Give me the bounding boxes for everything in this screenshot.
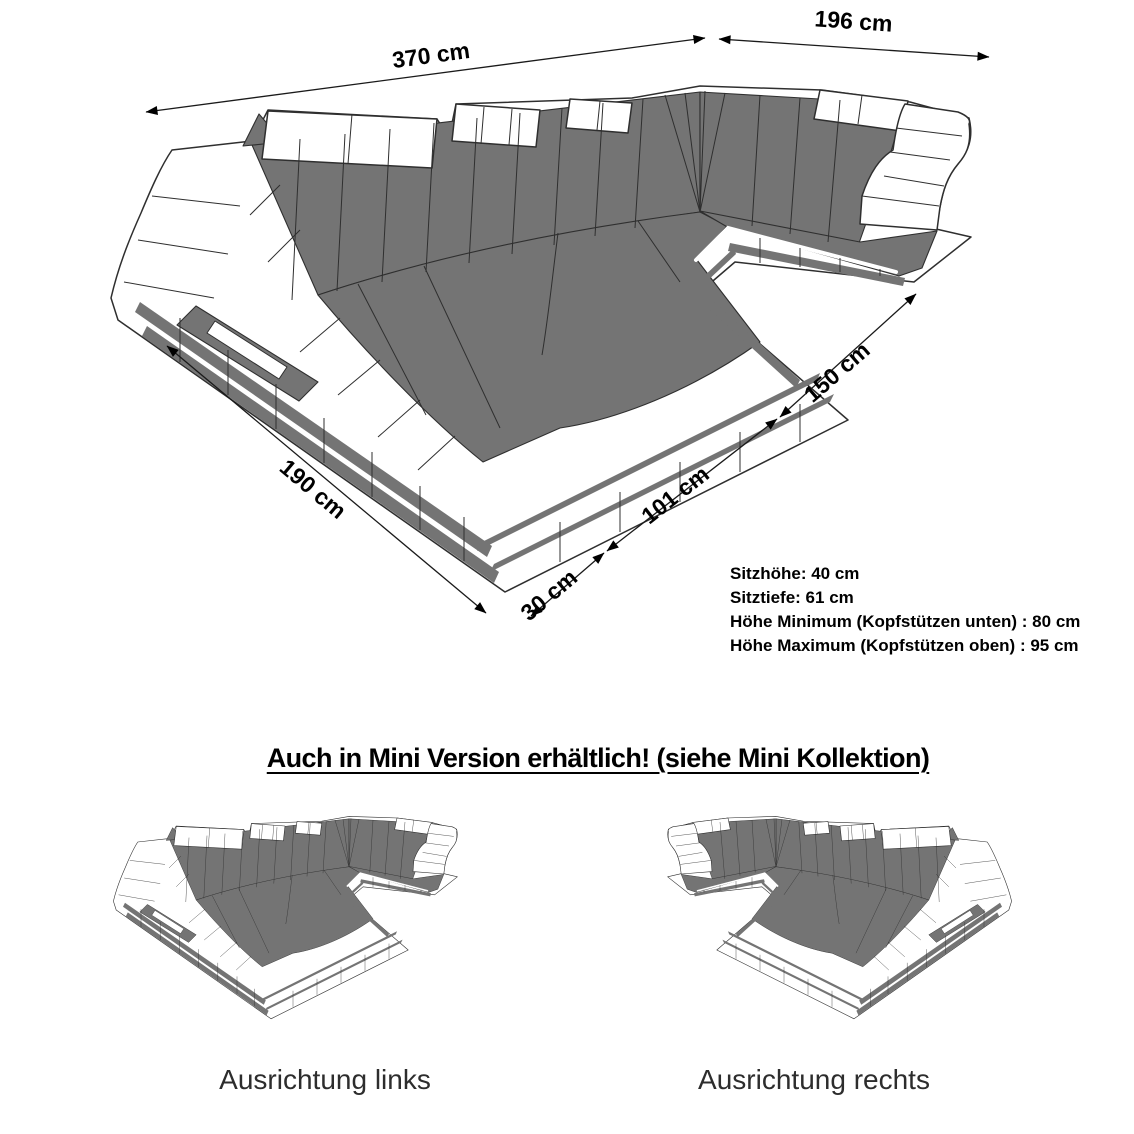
dimension-right-depth: 196 cm (719, 5, 989, 57)
spec-text-block: Sitzhöhe: 40 cm Sitztiefe: 61 cm Höhe Mi… (730, 562, 1080, 658)
dimension-right-inner-depth: 150 cm (780, 294, 916, 417)
mini-sofa-right-illustration (668, 816, 1012, 1018)
spec-height-min: Höhe Minimum (Kopfstützen unten) : 80 cm (730, 610, 1080, 634)
spec-seat-height: Sitzhöhe: 40 cm (730, 562, 1080, 586)
dimension-label-370: 370 cm (391, 37, 472, 73)
spec-height-max: Höhe Maximum (Kopfstützen oben) : 95 cm (730, 634, 1080, 658)
spec-seat-depth: Sitztiefe: 61 cm (730, 586, 1080, 610)
mini-version-heading: Auch in Mini Version erhältlich! (siehe … (267, 743, 929, 774)
mini-right-orientation-label: Ausrichtung rechts (698, 1064, 930, 1096)
sofa-dimension-diagram: 370 cm 196 cm 150 cm 101 cm 30 cm 190 cm… (0, 0, 1134, 1134)
dimension-label-196: 196 cm (814, 5, 894, 36)
mini-sofa-left-illustration (113, 816, 457, 1018)
mini-left-orientation-label: Ausrichtung links (219, 1064, 431, 1096)
dimension-label-150: 150 cm (799, 337, 875, 408)
dimension-arrow-line (719, 39, 989, 57)
main-sofa-illustration (111, 86, 971, 592)
